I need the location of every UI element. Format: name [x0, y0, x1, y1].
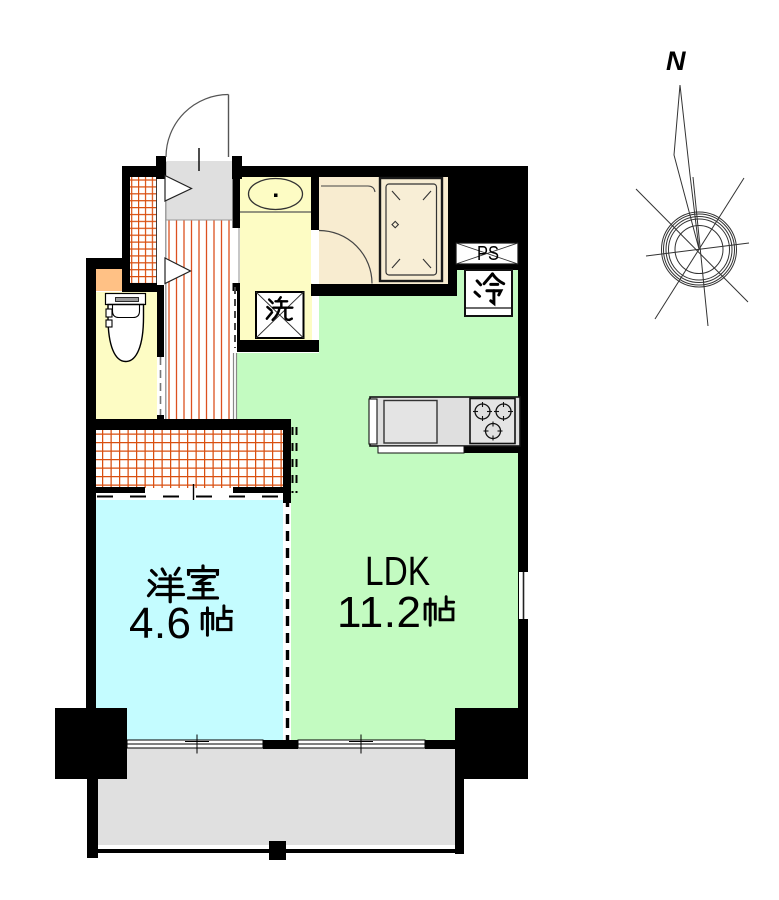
svg-text:N: N — [666, 46, 686, 76]
svg-text:4.6: 4.6 — [129, 599, 191, 648]
svg-text:PS: PS — [477, 243, 499, 265]
svg-text:11.2: 11.2 — [337, 588, 421, 637]
